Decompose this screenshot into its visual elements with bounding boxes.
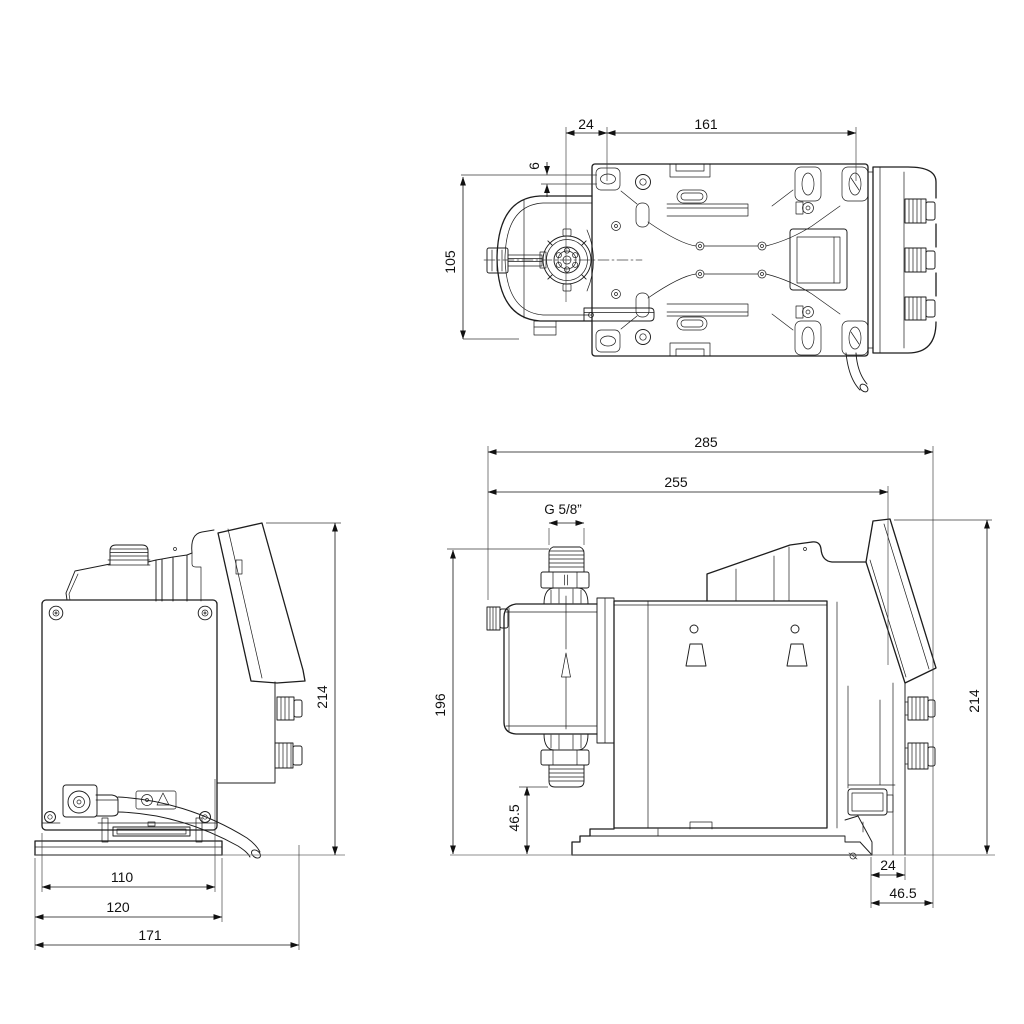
dim-label-6: 6 <box>526 162 542 170</box>
adjustment-knob <box>905 248 935 272</box>
dim-label-46-5-right: 46.5 <box>889 885 916 901</box>
adjustment-knob <box>905 199 935 223</box>
dim-label-255: 255 <box>664 474 688 490</box>
dim-label-214-side: 214 <box>966 689 982 713</box>
dim-label-285: 285 <box>694 434 718 450</box>
dim-label-196: 196 <box>432 693 448 717</box>
side-view <box>487 519 936 859</box>
back-knob <box>905 743 935 769</box>
wall-mount-keyhole <box>686 625 706 666</box>
front-view-dimensions: 214 110 120 171 <box>35 523 341 950</box>
dim-label-214-front: 214 <box>314 685 330 709</box>
side-housing <box>217 682 302 783</box>
valve-knob <box>275 743 302 768</box>
top-valve-connection <box>66 545 192 601</box>
dim-label-46-5-left: 46.5 <box>506 804 522 831</box>
dosing-head <box>487 547 614 787</box>
top-view <box>484 164 936 393</box>
front-cover-plate <box>42 600 217 830</box>
dim-label-thread: G 5/8” <box>544 502 582 517</box>
flow-direction-arrow-icon <box>562 596 571 729</box>
pump-body <box>614 601 837 828</box>
pump-dimensional-drawing: 24 161 6 105 <box>0 0 1024 1024</box>
control-panel <box>192 523 305 683</box>
base-plate-front <box>35 818 222 855</box>
dim-label-110: 110 <box>111 869 134 885</box>
mounting-plate <box>592 164 868 356</box>
dim-label-120: 120 <box>106 899 130 915</box>
front-view <box>35 523 305 860</box>
drawing-page: 24 161 6 105 <box>0 0 1024 1024</box>
cable-gland <box>63 785 118 817</box>
back-housing <box>845 683 935 859</box>
adjustment-knob <box>905 297 935 320</box>
control-panel-side <box>866 519 936 683</box>
dim-label-105: 105 <box>442 250 458 274</box>
valve-knob <box>277 697 302 720</box>
dim-label-24-side: 24 <box>880 857 896 873</box>
side-view-dimensions: 285 255 G 5/8” 196 46.5 214 24 46.5 <box>432 434 992 908</box>
sloped-cover <box>707 542 866 601</box>
dim-label-24-top: 24 <box>578 116 594 132</box>
power-cable <box>846 353 869 393</box>
dim-label-171: 171 <box>138 927 162 943</box>
dim-label-161: 161 <box>694 116 718 132</box>
back-knob <box>905 697 935 720</box>
warning-label <box>136 791 176 809</box>
wall-mount-keyhole <box>787 625 807 666</box>
motor-body <box>497 196 654 335</box>
priming-knob <box>487 248 546 273</box>
